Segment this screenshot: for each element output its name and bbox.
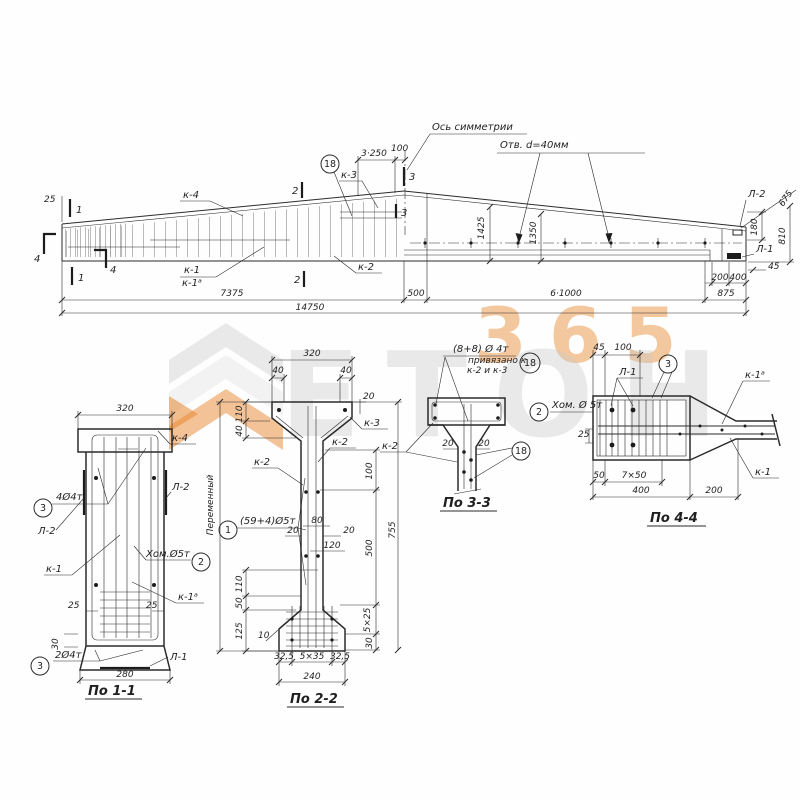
callout-k1a: к-1ᵃ	[182, 278, 202, 289]
s22-dim-110b: 110	[235, 575, 245, 592]
mark-3-top: 3	[409, 172, 415, 183]
s11-bars-2d4: 2Ø4т	[55, 649, 83, 661]
dim-500: 500	[407, 289, 424, 299]
s22-dim-20b: 20	[343, 526, 355, 536]
s44-dim-25: 25	[578, 430, 590, 440]
end-plates	[727, 230, 742, 259]
s11-callout-l2l: Л-2	[37, 526, 56, 537]
blueprint-page: 365 ЕТОН	[0, 0, 800, 800]
s11-dim-25b: 25	[146, 601, 158, 611]
s11-title: По 1-1	[88, 684, 136, 699]
s44-bottom-dims: 50 7×50 400 200	[590, 439, 741, 500]
callout-18-circle: 18	[324, 159, 336, 170]
s22-dim-50: 50	[235, 597, 245, 609]
elevation-end-dims: Л-2 675 180 810 Л-1 45 200 400	[705, 189, 796, 286]
s44-dim-200: 200	[705, 486, 722, 496]
s44-title: По 4-4	[650, 511, 698, 526]
s33-note-line2: привязано к	[468, 356, 527, 366]
s22-dim-20a: 20	[287, 526, 299, 536]
callout-k2: к-2	[358, 262, 374, 273]
s11-callout-k4: к-4	[172, 433, 188, 444]
s11-callout-k1a: к-1ᵃ	[178, 592, 198, 603]
s11-dim-25a: 25	[68, 601, 80, 611]
s11-dim-320: 320	[116, 404, 133, 414]
s22-dim-240: 240	[303, 672, 320, 682]
callout-l1: Л-1	[755, 244, 774, 255]
s22-circle-1: 1	[225, 525, 231, 536]
plate-l1	[727, 253, 741, 259]
s11-callout-l1: Л-1	[169, 652, 188, 663]
s22-dim-5x25: 5×25	[363, 607, 373, 632]
s44-dim-45: 45	[593, 343, 605, 353]
s22-dim-40b: 40	[235, 425, 245, 437]
s22-dim-40r: 40	[340, 366, 352, 376]
elevation-span-dims: 7375 500 6·1000 875 14750	[59, 261, 749, 316]
s22-dim-80: 80	[311, 516, 323, 526]
s22-dim-325b: 32,5	[330, 652, 350, 662]
section-3-3: 20 20 (8+8) Ø 4т привязано к к-2 и к-3 1…	[380, 343, 540, 511]
s44-dim-400: 400	[632, 486, 649, 496]
mark-1-bottom: 1	[78, 273, 84, 284]
holes-label: Отв. d=40мм	[500, 140, 569, 151]
mark-2-bottom: 2	[294, 275, 300, 286]
section-4-4: 45 100 50 7×50 400 200 Л-1 3 к-1ᵃ к-1	[530, 343, 780, 526]
s44-dim-50: 50	[593, 471, 605, 481]
dim-400: 400	[729, 273, 746, 283]
callout-l2: Л-2	[747, 189, 766, 200]
dim-45: 45	[768, 262, 780, 272]
s33-dims: 20 20	[442, 439, 490, 449]
s33-dim-20a: 20	[442, 439, 454, 449]
s11-circle-3b: 3	[37, 661, 43, 672]
callout-k1: к-1	[184, 265, 200, 276]
symmetry-axis-label: Ось симметрии	[432, 122, 513, 133]
s44-callout-k1: к-1	[755, 467, 771, 478]
dim-7375: 7375	[221, 289, 244, 299]
stirrup-cage	[64, 198, 402, 257]
s22-callout-k2b: к-2	[332, 437, 348, 448]
dim-1425: 1425	[477, 216, 487, 239]
dim-3x250: 3·250	[361, 149, 387, 159]
section-2-2: 320 40 40 20 110 40 110 50 125 10	[206, 349, 402, 707]
s11-dim-30: 30	[51, 638, 61, 650]
s44-outline	[593, 396, 780, 460]
s33-dim-20b: 20	[478, 439, 490, 449]
mark-4-right: 4	[110, 265, 116, 276]
s11-dims: 320 280 25 25 30	[51, 404, 175, 684]
s22-dim-5x35: 5×35	[300, 652, 325, 662]
s22-dim-110t: 110	[235, 405, 245, 422]
s22-dim-755: 755	[388, 521, 398, 538]
s33-circle-18b: 18	[515, 446, 527, 457]
dim-675: 675	[777, 189, 795, 209]
dim-6x1000: 6·1000	[550, 289, 582, 299]
s22-web-dims: 80 20 20 120	[285, 516, 355, 551]
elevation-view: 1 1 4 4 2 2 3 3 3·250 100 25	[34, 122, 796, 316]
s22-dim-30: 30	[365, 637, 375, 649]
s44-dim-7x50: 7×50	[622, 471, 647, 481]
callout-k3: к-3	[341, 170, 357, 181]
s22-callouts: к-3 к-2 к-2 1 (59+4)Ø5т	[219, 417, 388, 585]
s22-dim-100: 100	[365, 462, 375, 479]
s22-dim-40l: 40	[272, 366, 284, 376]
s11-bars-4d4: 4Ø4т	[56, 491, 84, 503]
s33-outline	[428, 398, 505, 494]
s44-stirrup-label: Хом. Ø 5т	[551, 399, 603, 411]
s44-callout-k1a: к-1ᵃ	[745, 370, 765, 381]
s11-stirrup-label: Хом.Ø5т	[145, 548, 191, 560]
dim-25-left: 25	[44, 195, 56, 205]
s22-bars-label: (59+4)Ø5т	[240, 515, 297, 527]
s22-dim-20top: 20	[363, 392, 375, 402]
s22-bottom-dims: 32,5 5×35 32,5 240	[274, 648, 350, 686]
holes-axis	[410, 238, 742, 248]
s33-circle-18a: 18	[524, 358, 536, 369]
dim-14750: 14750	[296, 303, 325, 313]
mark-1-top: 1	[76, 205, 82, 216]
s11-circle-3a: 3	[40, 503, 46, 514]
plate-l2	[733, 230, 742, 235]
drawing-canvas: 1 1 4 4 2 2 3 3 3·250 100 25	[0, 0, 800, 800]
s11-callout-l2r: Л-2	[171, 482, 190, 493]
s33-callouts: (8+8) Ø 4т привязано к к-2 и к-3 18 к-2 …	[380, 343, 540, 478]
dim-200: 200	[711, 273, 728, 283]
s22-callout-k3: к-3	[364, 418, 380, 429]
callout-k4: к-4	[183, 190, 199, 201]
s33-callout-k2: к-2	[382, 441, 398, 452]
s22-dim-500: 500	[365, 539, 375, 556]
s22-dim-325a: 32,5	[274, 652, 294, 662]
s44-circle-3: 3	[665, 359, 671, 370]
s11-callout-k1: к-1	[46, 564, 62, 575]
dim-100: 100	[391, 144, 408, 154]
dim-180: 180	[750, 218, 760, 235]
s44-dim-100: 100	[614, 343, 631, 353]
s22-top-dims: 320 40 40 20	[269, 349, 375, 414]
section-1-1: 320 280 25 25 30 к-4 Л-2 3 4Ø4т Л-2	[31, 404, 210, 699]
dim-875: 875	[717, 289, 734, 299]
s11-dim-280: 280	[116, 670, 133, 680]
s33-note-line3: к-2 и к-3	[467, 366, 508, 376]
s22-title: По 2-2	[290, 692, 338, 707]
mark-2-top: 2	[292, 186, 298, 197]
s22-dim-125: 125	[235, 622, 245, 639]
dim-810: 810	[778, 227, 788, 244]
s11-circle-2: 2	[198, 557, 204, 568]
s33-title: По 3-3	[443, 496, 491, 511]
s44-callout-l1: Л-1	[618, 367, 637, 378]
s22-dim-320: 320	[303, 349, 320, 359]
mark-4-left: 4	[34, 254, 40, 265]
s44-circle-2: 2	[536, 407, 542, 418]
s33-note-line1: (8+8) Ø 4т	[453, 343, 509, 355]
s22-dim-120: 120	[323, 541, 340, 551]
dim-1350: 1350	[529, 221, 539, 244]
s22-callout-k2a: к-2	[254, 457, 270, 468]
s22-variable-label: Переменный	[206, 475, 216, 536]
mark-3-mid: 3	[401, 208, 407, 219]
